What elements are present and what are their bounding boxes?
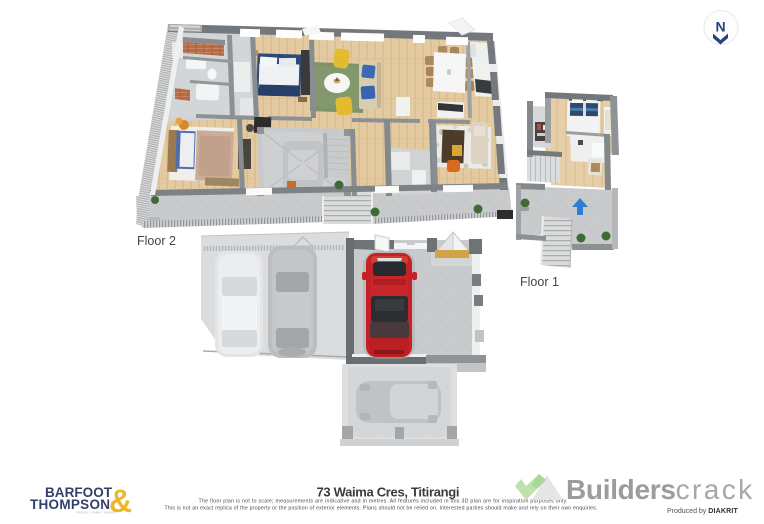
svg-text:Produced by DIAKRIT: Produced by DIAKRIT: [667, 508, 739, 515]
svg-text:Floor 1: Floor 1: [520, 275, 559, 289]
svg-text:Floor 2: Floor 2: [137, 234, 176, 248]
svg-text:THOMPSON: THOMPSON: [30, 497, 110, 512]
svg-text:This is not an exact replica o: This is not an exact replica of the prop…: [165, 505, 598, 511]
svg-text:Builderscrack: Builderscrack: [566, 474, 755, 505]
svg-text:PROUDLY FAMILY OWNED: PROUDLY FAMILY OWNED: [77, 511, 116, 515]
svg-text:73 Waima Cres, Titirangi: 73 Waima Cres, Titirangi: [317, 485, 460, 500]
svg-text:The floor plan is not to scale: The floor plan is not to scale; measurem…: [199, 499, 568, 505]
svg-text:N: N: [715, 19, 725, 35]
